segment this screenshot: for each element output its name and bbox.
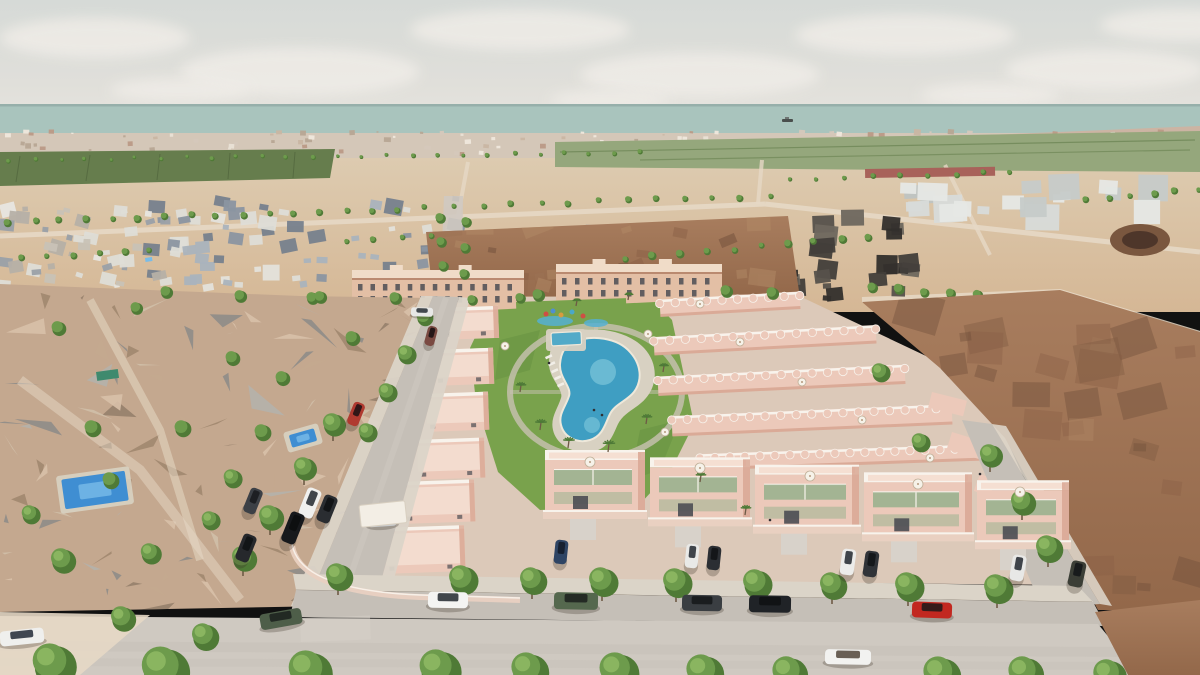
roof-arch [861,448,869,456]
roof-arch [700,374,708,382]
crossing-patch [300,616,371,642]
roof-arch [697,334,705,342]
roof-arch [854,367,862,375]
roof-arch [745,332,753,340]
car-cabin [922,603,943,612]
cloud [110,78,250,102]
cloud [0,18,190,58]
roof-arch [654,376,662,384]
play-equipment [570,310,575,315]
roof-arch [681,335,689,343]
roof-arch [856,326,864,334]
roof-arch [671,298,679,306]
round-structure-inner [1122,231,1158,249]
play-equipment [551,309,556,314]
lagoon-shallow [584,417,600,433]
roof-arch [808,369,816,377]
roof-arch [668,416,676,424]
roof-arch [801,450,809,458]
car [823,649,874,669]
roof-arch [733,295,741,303]
roof-arch [906,446,914,454]
car-cabin [759,597,781,606]
roof-arch [808,328,816,336]
sea-horizon [0,104,1200,107]
carport-canopies [359,501,407,528]
roof-arch [936,445,944,453]
cloud [1005,50,1200,90]
roof-arch [761,331,769,339]
roof-arch [656,299,664,307]
lagoon-shallow [590,359,616,385]
garage-door [678,503,693,516]
roof-arch [669,376,677,384]
aerial-render [0,0,1200,675]
roof-arch [699,415,707,423]
car-cabin [557,542,565,555]
roof-arch [839,409,847,417]
roof-arch [745,413,753,421]
roof-arch [901,364,909,372]
car-cabin [692,596,713,604]
roof-arch [846,449,854,457]
roof-arch [762,371,770,379]
roof-arch [776,330,784,338]
carport-canopy [359,501,407,528]
car-cabin [836,650,860,658]
garage-door [784,511,799,524]
roof-arch [839,367,847,375]
roof-arch [824,327,832,335]
roof-arch [796,291,804,299]
small-pool [551,331,582,346]
car-cabin [710,548,718,561]
driveway [675,525,701,547]
car-cabin [565,594,588,603]
driveway [891,540,917,562]
sea [0,104,1200,137]
roof-arch [715,373,723,381]
cloud [410,10,630,50]
roof-arch [729,333,737,341]
roof-arch [854,408,862,416]
roof-arch [816,450,824,458]
roof-arch [793,370,801,378]
car [410,307,435,319]
person [769,519,772,522]
car [747,595,794,617]
roof-arch [746,372,754,380]
person [548,362,551,365]
roof-arch [808,410,816,418]
car-cabin [438,593,459,601]
roof-arch [684,375,692,383]
garage-door [894,518,909,531]
garage-door [573,496,588,509]
roof-arch [792,411,800,419]
townhouse-row [660,300,800,308]
roof-arch [780,292,788,300]
roof-arch [891,447,899,455]
car [552,592,601,614]
splash-pool [584,319,608,327]
roof-arch [771,451,779,459]
roof-arch [683,415,691,423]
roof-arch [665,336,673,344]
roof-arch [713,333,721,341]
roof-arch [916,405,924,413]
aerial-render-stage [0,0,1200,675]
person [979,473,982,476]
roof-arch [756,452,764,460]
roof-arch [823,368,831,376]
play-equipment [544,312,549,317]
car [680,595,724,616]
roof-arch [777,370,785,378]
roof-arch [730,413,738,421]
roof-arch [761,412,769,420]
car [910,601,955,623]
roof-arch [876,448,884,456]
roof-arch [786,451,794,459]
splash-pool [537,316,573,326]
roof-arch [792,329,800,337]
person [593,409,596,412]
person [601,414,604,417]
roof-arch [831,449,839,457]
roof-arch [714,414,722,422]
roof-arch [901,406,909,414]
play-equipment [581,314,586,319]
car-cabin [416,308,428,313]
roof-arch [885,407,893,415]
roof-arch [731,373,739,381]
roof-arch [840,327,848,335]
cargo-ship [782,119,793,122]
roof-arch [823,409,831,417]
roof-arch [650,337,658,345]
car-cabin [688,546,696,559]
driveway [781,533,807,555]
roof-arch [749,294,757,302]
garage-door [1003,526,1018,539]
roof-arch [872,325,880,333]
ship-superstructure [785,117,789,119]
roof-arch [870,407,878,415]
roof-arch [687,298,695,306]
driveway [570,518,596,540]
cloud [795,15,1015,55]
car [426,592,470,613]
cloud [920,83,1060,107]
roof-arch [776,411,784,419]
play-equipment [559,313,564,318]
